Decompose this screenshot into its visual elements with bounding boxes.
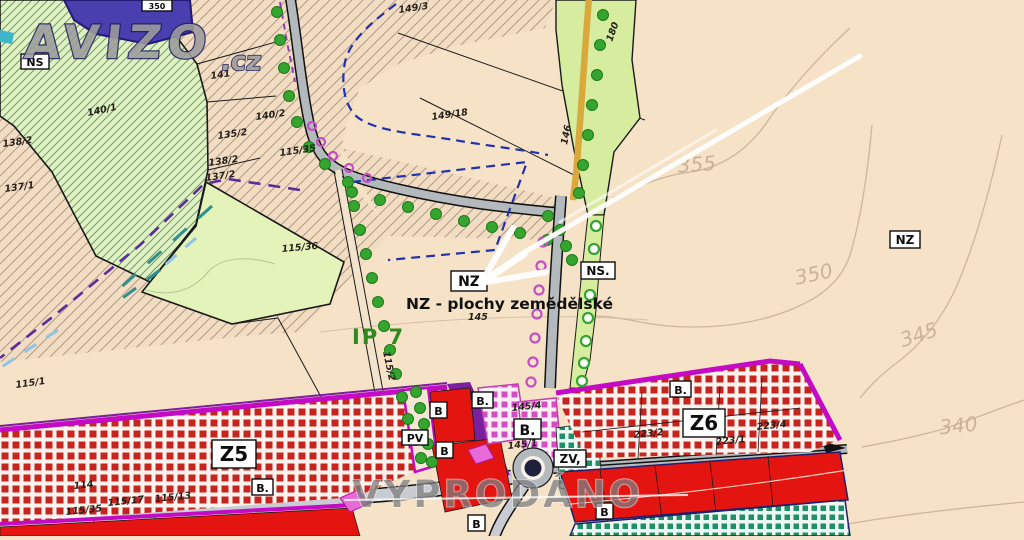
brand-logo-text: AVIZO	[22, 15, 215, 69]
blue-parcel-label: 350	[149, 2, 166, 11]
b-label: B	[440, 445, 448, 458]
ns-road-label: NS.	[586, 264, 609, 278]
z5-label: Z5	[220, 442, 248, 466]
b-dot-label: B.	[674, 384, 687, 397]
pv-label: PV	[407, 432, 424, 445]
contour-label-355: 355	[677, 151, 717, 178]
contour-label-340: 340	[938, 412, 978, 440]
nz-right-label: NZ	[896, 233, 915, 247]
b-dot-label: B.	[256, 482, 269, 495]
zv-label: ZV,	[560, 452, 581, 466]
sold-text: VYPRODÁNO	[352, 472, 643, 516]
parcel-label: 114	[73, 479, 94, 492]
brand-logo-suffix: .cz	[219, 47, 263, 77]
z6-label: Z6	[690, 411, 718, 435]
parcel-label: 145	[468, 312, 488, 323]
b-dot-label: B.	[476, 395, 489, 408]
cadastral-map[interactable]: 355 350 345 340	[0, 0, 1024, 540]
watermark-sold: VYPRODÁNO	[344, 472, 688, 516]
b-label: B	[434, 405, 442, 418]
b-label: B	[472, 518, 480, 531]
nz-callout-code: NZ	[458, 274, 480, 290]
nz-callout-text: NZ - plochy zemědělské	[406, 295, 613, 313]
map-canvas: 355 350 345 340	[0, 0, 1024, 536]
b-dot-label: B.	[520, 423, 536, 439]
ip-line-label: IP 7	[352, 325, 405, 349]
